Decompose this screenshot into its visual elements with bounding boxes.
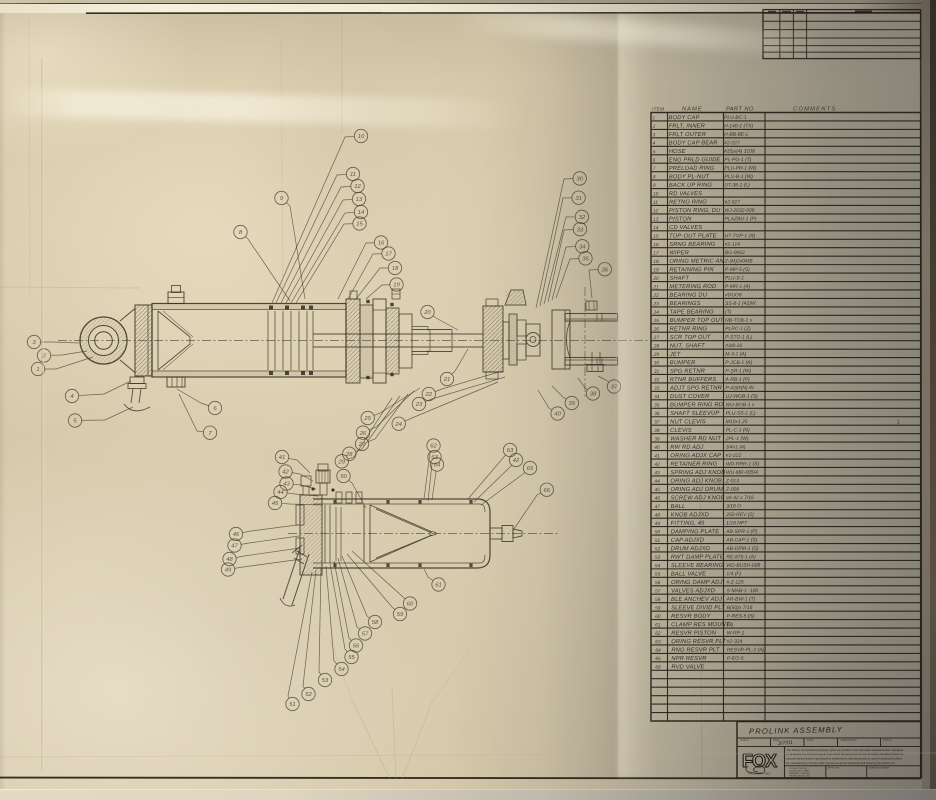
svg-text:SCR TOP OUT: SCR TOP OUT	[670, 335, 711, 341]
svg-text:PLU-BC-1: PLU-BC-1	[724, 115, 747, 121]
svg-text:SPG RETNR: SPG RETNR	[670, 369, 706, 375]
svg-text:3/4x1 (4): 3/4x1 (4)	[726, 444, 746, 450]
svg-text:19: 19	[393, 283, 400, 289]
svg-text:45: 45	[272, 501, 279, 507]
svg-text:RESVR BODY: RESVR BODY	[671, 614, 712, 620]
svg-text:PL-PG-1 (T): PL-PG-1 (T)	[724, 157, 752, 163]
svg-text:8: 8	[239, 230, 243, 236]
svg-text:53: 53	[322, 678, 329, 684]
svg-text:JET: JET	[669, 352, 681, 358]
svg-text:RNG RESVR PLT: RNG RESVR PLT	[671, 647, 720, 653]
svg-text:25: 25	[363, 416, 371, 422]
svg-text:RTNR BUFFERS: RTNR BUFFERS	[670, 377, 716, 383]
svg-text:CLAMP RES MOUNT: CLAMP RES MOUNT	[671, 622, 730, 628]
svg-text:APPROVED: APPROVED	[828, 767, 841, 770]
svg-text:FRLT OUTER: FRLT OUTER	[669, 132, 707, 138]
svg-text:RE-875-1 (A): RE-875-1 (A)	[726, 554, 756, 560]
svg-text:CD VALVES: CD VALVES	[669, 225, 702, 231]
svg-text:S-MAB-1 -100: S-MAB-1 -100	[726, 588, 758, 594]
svg-text:SCALE: SCALE	[740, 738, 749, 742]
svg-text:SS-8-1 (42)W: SS-8-1 (42)W	[725, 301, 757, 307]
svg-text:62: 62	[430, 444, 437, 450]
svg-text:BALL: BALL	[671, 504, 686, 510]
svg-text:BUMPER TOP OUT: BUMPER TOP OUT	[670, 318, 724, 324]
svg-text:#3/8-16: #3/8-16	[725, 343, 742, 349]
svg-text:CAP ADJXD: CAP ADJXD	[671, 538, 704, 544]
svg-text:18: 18	[392, 266, 399, 272]
svg-text:B(50)x 7/16: B(50)x 7/16	[727, 605, 753, 611]
svg-text:ORING RESVR PLT: ORING RESVR PLT	[671, 639, 726, 645]
svg-text:33: 33	[577, 227, 584, 233]
svg-text:63: 63	[507, 448, 514, 454]
svg-text:Z-(M)2x0MB: Z-(M)2x0MB	[724, 258, 753, 264]
svg-text:VALVES ADJXD: VALVES ADJXD	[671, 588, 715, 594]
svg-text:METERING ROD: METERING ROD	[669, 284, 716, 290]
svg-text:42: 42	[513, 458, 520, 464]
svg-text:50: 50	[340, 474, 347, 480]
svg-text:31: 31	[575, 196, 582, 202]
svg-text:#2-324: #2-324	[727, 639, 743, 645]
svg-text:1: 1	[36, 367, 39, 373]
svg-text:BUMPER: BUMPER	[670, 360, 696, 366]
svg-text:ORING METRIC AN: ORING METRIC AN	[669, 259, 724, 265]
svg-text:#2-222: #2-222	[726, 453, 742, 459]
svg-text:H-BB-BE-L: H-BB-BE-L	[724, 132, 749, 138]
svg-text:AB-DRM-1 (S): AB-DRM-1 (S)	[725, 546, 759, 552]
svg-text:56: 56	[353, 644, 360, 650]
svg-text:DRAWING NUMBER: DRAWING NUMBER	[869, 767, 890, 770]
svg-text:42: 42	[282, 470, 289, 476]
svg-text:250-REV (2): 250-REV (2)	[725, 512, 754, 518]
svg-text:PLU-S-1: PLU-S-1	[725, 275, 744, 281]
svg-text:26: 26	[359, 431, 367, 437]
svg-text:30: 30	[576, 177, 583, 183]
svg-text:HOSE: HOSE	[669, 149, 686, 155]
svg-text:PRELOAD RING: PRELOAD RING	[669, 166, 715, 172]
svg-text:AB-CAP-1 (S): AB-CAP-1 (S)	[725, 537, 757, 543]
svg-text:55: 55	[348, 655, 355, 661]
svg-text:1/16 NPT: 1/16 NPT	[726, 520, 748, 526]
svg-text:M10x1.25: M10x1.25	[726, 419, 748, 425]
svg-text:PLAZBU-1 (P): PLAZBU-1 (P)	[725, 216, 757, 222]
svg-text:3/7/01: 3/7/01	[778, 740, 793, 747]
svg-text:BACK UP RING: BACK UP RING	[669, 183, 713, 189]
svg-text:PL-C-1 (N): PL-C-1 (N)	[726, 428, 751, 434]
svg-text:WASHER RD NUT: WASHER RD NUT	[670, 436, 721, 442]
svg-text:48: 48	[226, 557, 233, 563]
svg-text:P-SR-1 (W): P-SR-1 (W)	[725, 368, 751, 374]
svg-text:NUT CLEVIS: NUT CLEVIS	[670, 419, 706, 425]
svg-text:4: 4	[70, 394, 74, 400]
svg-text:RD VALVES: RD VALVES	[669, 191, 702, 197]
svg-text:38: 38	[590, 392, 597, 398]
svg-text:CLEVIS: CLEVIS	[670, 428, 692, 434]
svg-text:3/16 O: 3/16 O	[726, 504, 741, 510]
svg-text:ORING ADJX CAP: ORING ADJX CAP	[670, 453, 721, 459]
svg-text:NB-TOB-1 x: NB-TOB-1 x	[725, 318, 753, 324]
svg-text:PLU-SS-1 (L): PLU-SS-1 (L)	[726, 411, 756, 417]
svg-text:M-3-1 (A): M-3-1 (A)	[725, 351, 746, 357]
svg-text:UJ-WGB-1 (S): UJ-WGB-1 (S)	[725, 394, 758, 400]
svg-text:ORING DAMP ADJ: ORING DAMP ADJ	[671, 580, 723, 586]
svg-text:6: 6	[213, 406, 217, 412]
svg-text:PROLINK ASSEMBLY: PROLINK ASSEMBLY	[749, 725, 843, 736]
svg-text:H-140-1 (TX): H-140-1 (TX)	[724, 123, 754, 129]
svg-text:BODY CAP BEAR: BODY CAP BEAR	[669, 140, 719, 146]
svg-text:SRNG BEARING: SRNG BEARING	[669, 242, 716, 248]
svg-text:PLU-B-1 (W): PLU-B-1 (W)	[724, 174, 753, 180]
svg-text:SLEEVE DIVID PLT: SLEEVE DIVID PLT	[671, 605, 725, 611]
svg-text:ENG PRLD GUIDE: ENG PRLD GUIDE	[669, 157, 721, 163]
svg-text:47: 47	[231, 544, 238, 550]
svg-text:17: 17	[385, 252, 392, 258]
svg-text:UT-38-1 (L): UT-38-1 (L)	[724, 182, 750, 188]
svg-text:58: 58	[372, 620, 379, 626]
svg-text:WD-RRR-1 (S): WD-RRR-1 (S)	[726, 461, 760, 467]
svg-text:SCREW ADJ KNOB: SCREW ADJ KNOB	[670, 495, 724, 501]
svg-text:ORING ADJ KNOB: ORING ADJ KNOB	[670, 478, 722, 484]
svg-text:49: 49	[225, 568, 232, 574]
svg-text:20: 20	[423, 310, 431, 316]
svg-text:23: 23	[415, 402, 423, 408]
svg-text:DRUM ADJXD: DRUM ADJXD	[671, 546, 710, 552]
svg-text:39: 39	[569, 401, 576, 407]
svg-text:P-ASR(N) W: P-ASR(N) W	[725, 385, 755, 391]
svg-text:BUMPER RING RD: BUMPER RING RD	[670, 402, 723, 408]
svg-text:32: 32	[579, 215, 586, 221]
svg-text:AB-SPR-1 (P): AB-SPR-1 (P)	[725, 529, 757, 535]
svg-text:KNOB ADJXD: KNOB ADJXD	[671, 512, 709, 518]
svg-text:P-RES-5 (S): P-RES-5 (S)	[727, 613, 755, 619]
svg-text:NUT, SHAFT: NUT, SHAFT	[670, 343, 705, 349]
svg-text:BODY PL-NUT: BODY PL-NUT	[669, 174, 710, 180]
svg-text:(T): (T)	[725, 309, 732, 315]
svg-text:RETNR RING: RETNR RING	[670, 326, 708, 332]
svg-text:RETAINING PIN: RETAINING PIN	[669, 267, 714, 273]
svg-text:TOP-OUT PLATE: TOP-OUT PLATE	[669, 233, 717, 239]
svg-text:BEARING DU: BEARING DU	[669, 293, 707, 299]
svg-text:66: 66	[544, 488, 551, 494]
svg-text:#2-027: #2-027	[724, 199, 740, 205]
svg-text:P-MR-1 (A): P-MR-1 (A)	[725, 284, 751, 290]
svg-text:2PL-1 (W): 2PL-1 (W)	[725, 436, 749, 442]
svg-text:#2-227: #2-227	[724, 140, 740, 146]
svg-text:36: 36	[602, 267, 609, 273]
svg-text:UT-TOP-1 (A): UT-TOP-1 (A)	[725, 233, 756, 239]
svg-text:51: 51	[289, 702, 296, 708]
svg-text:57: 57	[362, 632, 369, 638]
svg-text:35: 35	[582, 257, 589, 263]
svg-text:CHECKED BY: CHECKED BY	[840, 738, 857, 742]
svg-text:W-RP-1: W-RP-1	[727, 630, 745, 636]
svg-text:44: 44	[277, 490, 284, 496]
svg-text:13: 13	[356, 197, 363, 203]
svg-text:15: 15	[356, 222, 363, 228]
svg-text:16: 16	[378, 241, 385, 247]
svg-text:BODY CAP: BODY CAP	[669, 115, 700, 121]
svg-text:Z-008: Z-008	[725, 487, 739, 493]
svg-text:DWG N: DWG N	[883, 738, 892, 742]
svg-text:FACTORY INC.: FACTORY INC.	[748, 772, 771, 776]
svg-text:FITTING, 45: FITTING, 45	[671, 521, 706, 527]
svg-text:PART NO: PART NO	[726, 107, 754, 113]
svg-text:P-STO-1 (L): P-STO-1 (L)	[725, 335, 752, 341]
svg-text:SHAFT: SHAFT	[669, 276, 689, 282]
svg-text:PISTON RING, DU: PISTON RING, DU	[669, 208, 721, 214]
svg-text:10: 10	[358, 134, 365, 140]
svg-text:RETNG RING: RETNG RING	[669, 200, 707, 206]
svg-text:DATE: DATE	[807, 738, 814, 742]
svg-text:59: 59	[397, 612, 404, 618]
svg-text:52: 52	[305, 692, 312, 698]
svg-text:(B): (B)	[727, 622, 734, 628]
svg-text:RESVR-PL-2 (A): RESVR-PL-2 (A)	[727, 647, 765, 653]
svg-text:3: 3	[32, 340, 36, 346]
svg-text:BG-0062: BG-0062	[725, 250, 745, 256]
svg-text:NPR RESVR: NPR RESVR	[671, 656, 707, 662]
svg-text:BLE ANCHEV ADJ: BLE ANCHEV ADJ	[671, 597, 722, 603]
svg-text:AR-BW-1 (T): AR-BW-1 (T)	[726, 597, 756, 603]
svg-text:#DUO8: #DUO8	[725, 292, 742, 298]
svg-text:RESVR PISTON: RESVR PISTON	[671, 631, 717, 637]
svg-text:21: 21	[443, 377, 451, 383]
svg-text:COMMENTS: COMMENTS	[793, 107, 836, 113]
svg-text:FRLT, INNER: FRLT, INNER	[669, 123, 706, 129]
svg-text:NAME: NAME	[682, 107, 703, 113]
svg-text:22: 22	[425, 392, 433, 398]
svg-text:WU-MR-005/4: WU-MR-005/4	[726, 470, 758, 476]
svg-text:The Factory Incorporated propr: The Factory Incorporated proprietary rig…	[787, 748, 904, 752]
svg-text:ORING ADJ DRUM: ORING ADJ DRUM	[670, 487, 722, 493]
svg-text:PHONE (408) 371-1221: PHONE (408) 371-1221	[789, 775, 811, 777]
svg-text:#2-114: #2-114	[725, 242, 740, 248]
svg-text:11: 11	[350, 172, 356, 178]
svg-text:K(5)x(4) 3108: K(5)x(4) 3108	[724, 149, 755, 155]
svg-text:34: 34	[579, 245, 586, 251]
svg-text:PLRC-1 (Z): PLRC-1 (Z)	[725, 326, 751, 332]
svg-text:A-RB-1 (P): A-RB-1 (P)	[724, 377, 750, 383]
svg-text:P-MP-5 (S): P-MP-5 (S)	[725, 267, 750, 273]
svg-text:64: 64	[434, 463, 441, 469]
svg-text:RWT DAMP PLATE: RWT DAMP PLATE	[671, 554, 724, 560]
svg-text:WD-BUSH-008: WD-BUSH-008	[726, 563, 760, 569]
svg-text:ADJT SPG RETNR: ADJT SPG RETNR	[669, 385, 723, 391]
svg-text:41: 41	[279, 455, 286, 461]
svg-text:29: 29	[338, 460, 346, 466]
svg-text:61: 61	[435, 583, 442, 589]
svg-text:DUST COVER: DUST COVER	[670, 394, 710, 400]
svg-text:# Z-125: # Z-125	[726, 580, 743, 586]
svg-text:BEARINGS: BEARINGS	[669, 301, 700, 307]
svg-text:P-JCB-1 (A): P-JCB-1 (A)	[725, 360, 752, 366]
svg-text:46: 46	[233, 532, 240, 538]
svg-text:RVD VALVE: RVD VALVE	[671, 664, 704, 670]
svg-text:24: 24	[394, 422, 402, 428]
svg-text:28: 28	[345, 452, 353, 458]
svg-text:SLEEVE BEARING: SLEEVE BEARING	[671, 563, 724, 569]
svg-text:WU-BOB-1 x: WU-BOB-1 x	[726, 402, 755, 408]
svg-text:SHAFT SLEEVUP: SHAFT SLEEVUP	[670, 411, 719, 417]
svg-text:40: 40	[554, 412, 561, 418]
svg-text:#6-32 x 7/16: #6-32 x 7/16	[726, 495, 754, 501]
svg-text:1/4 (F): 1/4 (F)	[726, 571, 741, 577]
svg-text:12: 12	[354, 184, 361, 190]
svg-text:SPRING ADJ KNOB: SPRING ADJ KNOB	[670, 470, 725, 476]
svg-text:DAMPING PLATE: DAMPING PLATE	[671, 529, 720, 535]
svg-text:65: 65	[527, 466, 534, 472]
svg-text:WIPER: WIPER	[669, 250, 689, 256]
svg-text:7: 7	[208, 431, 212, 437]
svg-text:60: 60	[407, 602, 414, 608]
svg-text:PLU-PR-1 (W): PLU-PR-1 (W)	[724, 165, 757, 171]
svg-text:1: 1	[896, 419, 900, 425]
svg-text:PISTON: PISTON	[669, 217, 692, 223]
svg-text:TAPE BEARING: TAPE BEARING	[670, 309, 715, 315]
svg-text:RETAINER RING: RETAINER RING	[670, 461, 717, 467]
svg-text:for manufacturing or for any o: for manufacturing or for any other purpo…	[787, 761, 897, 765]
svg-text:any part thereof shall be repr: any part thereof shall be reproduced or …	[787, 757, 903, 761]
svg-text:WJ-2032-008: WJ-2032-008	[724, 208, 754, 214]
svg-text:P-EO-5: P-EO-5	[727, 656, 744, 662]
svg-text:14: 14	[358, 210, 365, 216]
svg-text:5: 5	[73, 419, 77, 425]
svg-text:RW RD ADJ: RW RD ADJ	[670, 445, 703, 451]
svg-text:Z-013: Z-013	[725, 478, 739, 484]
